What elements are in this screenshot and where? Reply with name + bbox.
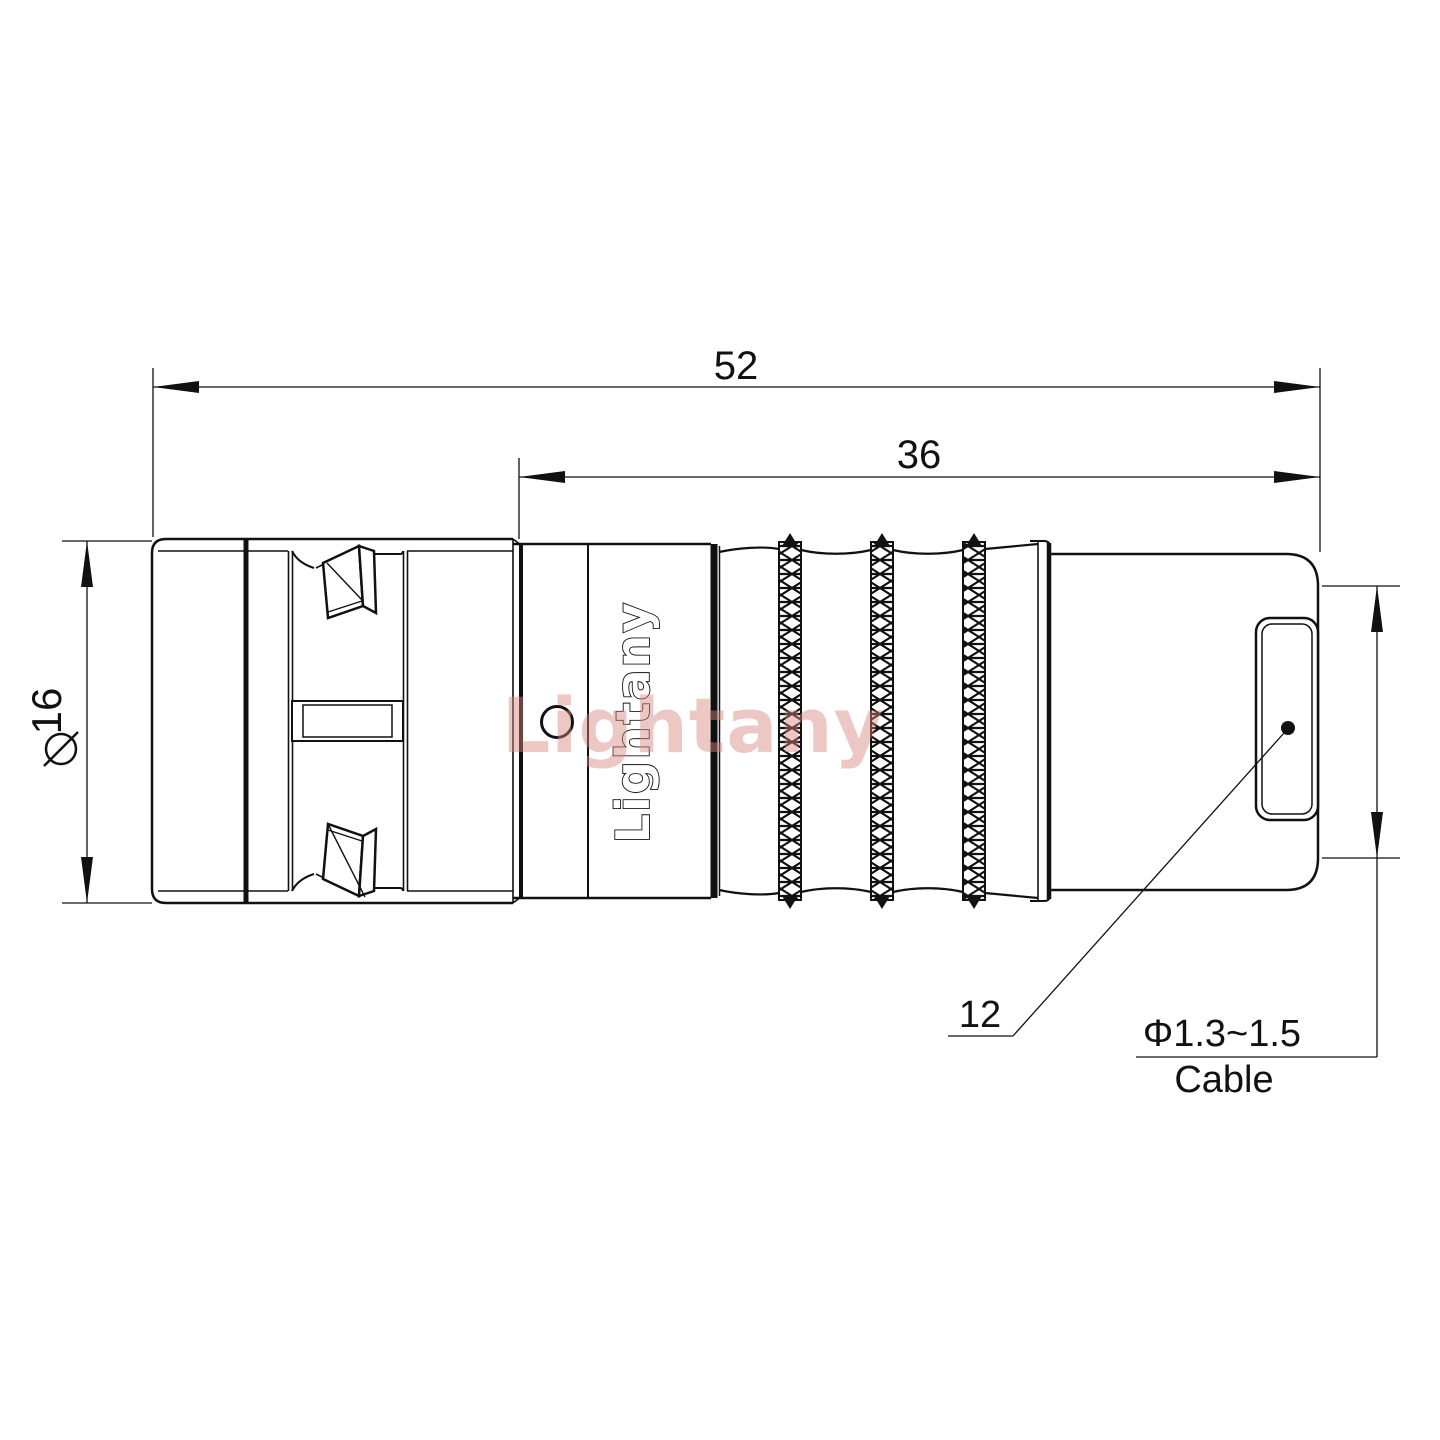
dim-body-length-label: 36 xyxy=(897,433,942,477)
cable-word-label: Cable xyxy=(1174,1059,1273,1101)
leader-rear-size xyxy=(948,733,1284,1036)
rear-taper-bottom xyxy=(985,893,1038,898)
arrowhead-right xyxy=(1274,471,1320,483)
cable-diameter-label: Φ1.3~1.5 xyxy=(1143,1013,1301,1055)
diameter-symbol xyxy=(44,732,78,766)
cable-entry-dot xyxy=(1281,721,1295,735)
bayonet-key-bottom xyxy=(292,824,403,897)
arrowhead-down xyxy=(1371,812,1383,858)
technical-drawing-page: 52 36 16 12 Φ1.3~1.5 Cable Lightany Ligh… xyxy=(0,0,1440,1440)
arrowhead-up xyxy=(81,541,93,587)
dim-total-length xyxy=(153,368,1320,552)
rear-size-label: 12 xyxy=(959,994,1001,1036)
arrowhead-right xyxy=(1274,381,1320,393)
knurl-ring-3 xyxy=(963,533,985,909)
connector-drawing: 52 36 16 12 Φ1.3~1.5 Cable Lightany Ligh… xyxy=(0,0,1440,1440)
rear-flange xyxy=(1030,541,1050,901)
arrowhead-left xyxy=(519,471,565,483)
watermark-text: Lightany xyxy=(502,681,884,770)
dim-total-length-label: 52 xyxy=(714,344,759,388)
arrowhead-left xyxy=(153,381,199,393)
latch-window-band xyxy=(292,701,403,741)
arrowhead-up xyxy=(1371,586,1383,632)
cable-entry-window xyxy=(1256,618,1318,820)
rear-taper-top xyxy=(985,544,1038,549)
bayonet-key-top xyxy=(292,546,403,618)
arrowhead-down xyxy=(81,857,93,903)
dim-front-diameter-label: 16 xyxy=(23,688,70,735)
